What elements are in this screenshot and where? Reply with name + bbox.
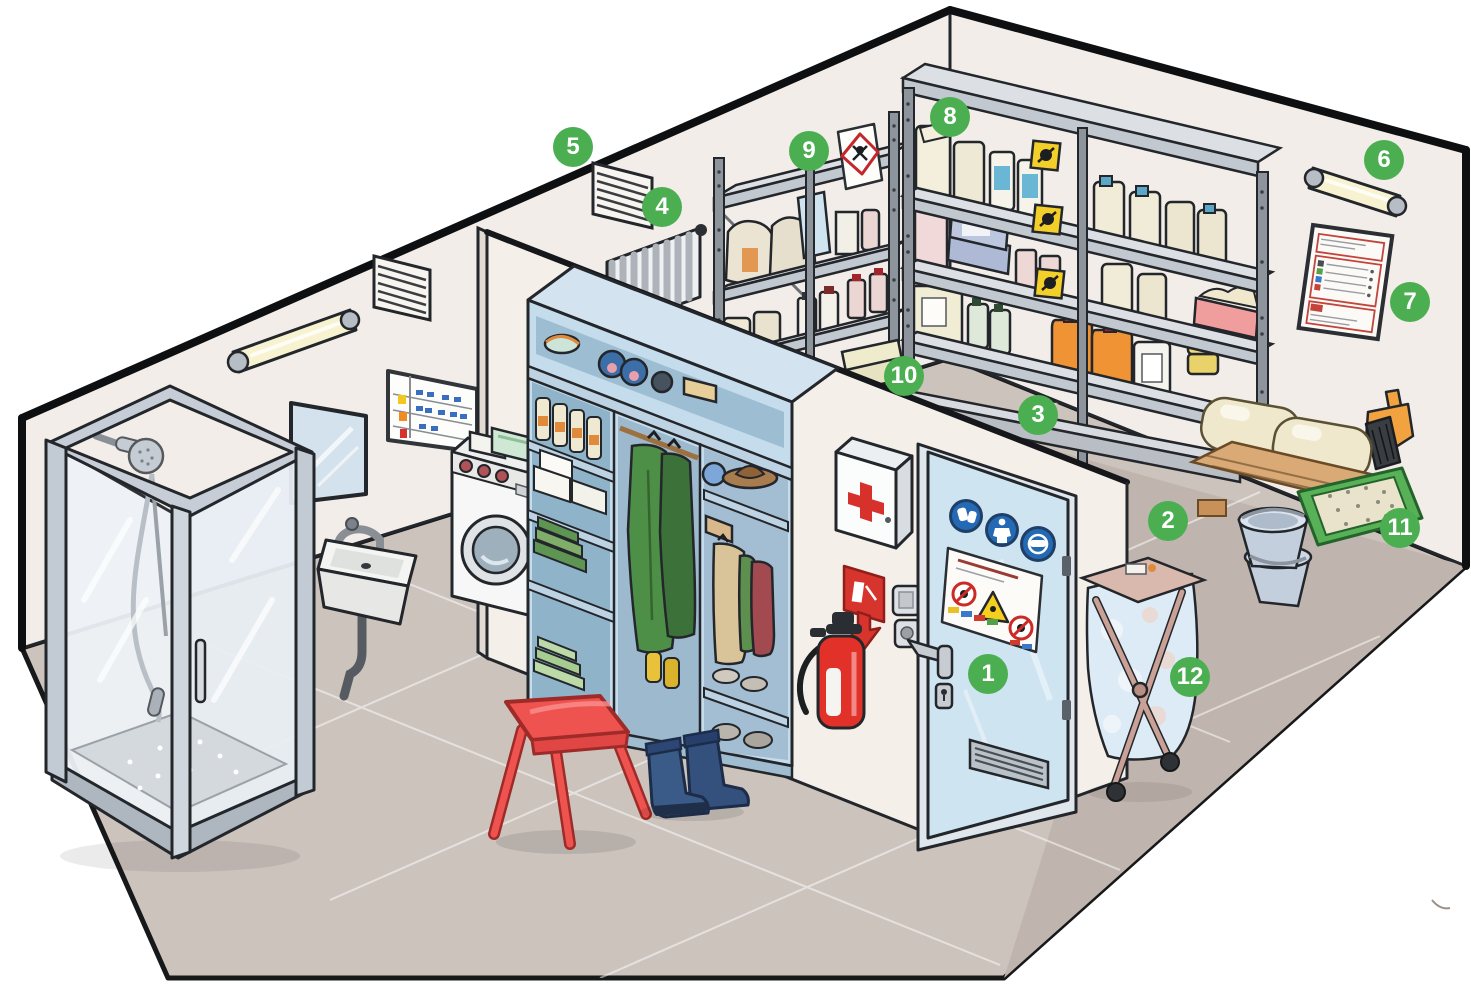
shower-door-handle[interactable] xyxy=(196,640,205,702)
ghs-hazard-pictogram-sign xyxy=(838,124,882,189)
hotspot-badge-6[interactable]: 6 xyxy=(1364,140,1404,180)
hotspot-badge-1[interactable]: 1 xyxy=(968,654,1008,694)
room-diagram: 1 2 3 4 5 6 7 8 9 10 11 12 xyxy=(0,0,1471,994)
access-door[interactable] xyxy=(908,444,1076,850)
hotspot-badge-7[interactable]: 7 xyxy=(1390,282,1430,322)
room-illustration xyxy=(0,0,1471,994)
hotspot-badge-8[interactable]: 8 xyxy=(930,97,970,137)
wall-poster xyxy=(1299,225,1393,339)
mandatory-gloves-sign xyxy=(949,499,983,533)
hanging-coveralls xyxy=(628,432,695,653)
hotspot-badge-9[interactable]: 9 xyxy=(789,131,829,171)
hotspot-badge-12[interactable]: 12 xyxy=(1170,657,1210,697)
hotspot-badge-10[interactable]: 10 xyxy=(884,356,924,396)
hotspot-badge-11[interactable]: 11 xyxy=(1380,508,1420,548)
hotspot-badge-4[interactable]: 4 xyxy=(642,187,682,227)
hotspot-badge-5[interactable]: 5 xyxy=(553,127,593,167)
first-aid-cabinet xyxy=(836,438,912,548)
mandatory-protective-suit-sign xyxy=(985,513,1019,547)
mandatory-face-protection-sign xyxy=(1020,526,1056,562)
hazard-label-icons xyxy=(1031,141,1065,299)
hotspot-badge-2[interactable]: 2 xyxy=(1148,501,1188,541)
hotspot-badge-3[interactable]: 3 xyxy=(1018,395,1058,435)
